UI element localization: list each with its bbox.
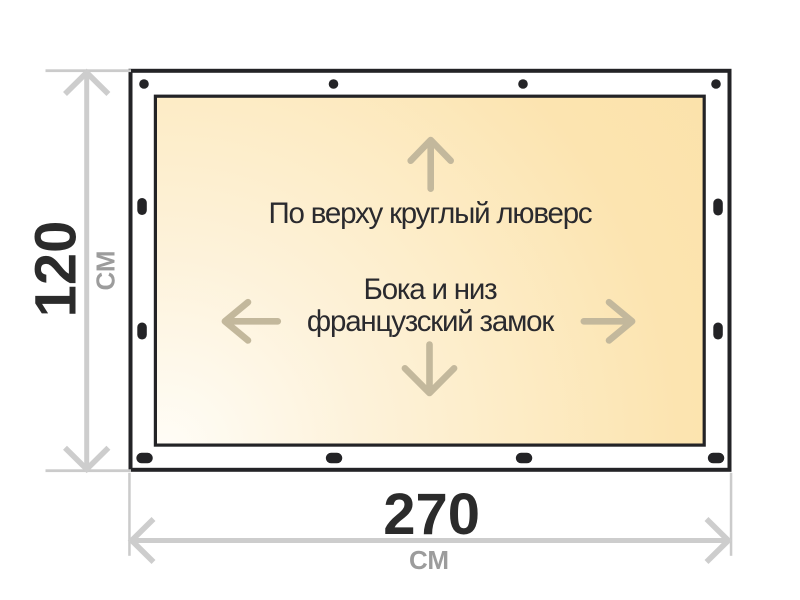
svg-text:французский замок: французский замок [307,305,555,338]
svg-text:120: 120 [24,221,89,318]
svg-text:СМ: СМ [90,250,120,290]
svg-text:Бока и низ: Бока и низ [364,273,498,306]
svg-text:СМ: СМ [409,545,449,575]
svg-text:270: 270 [383,482,480,547]
svg-text:По верху круглый люверс: По верху круглый люверс [269,197,592,230]
